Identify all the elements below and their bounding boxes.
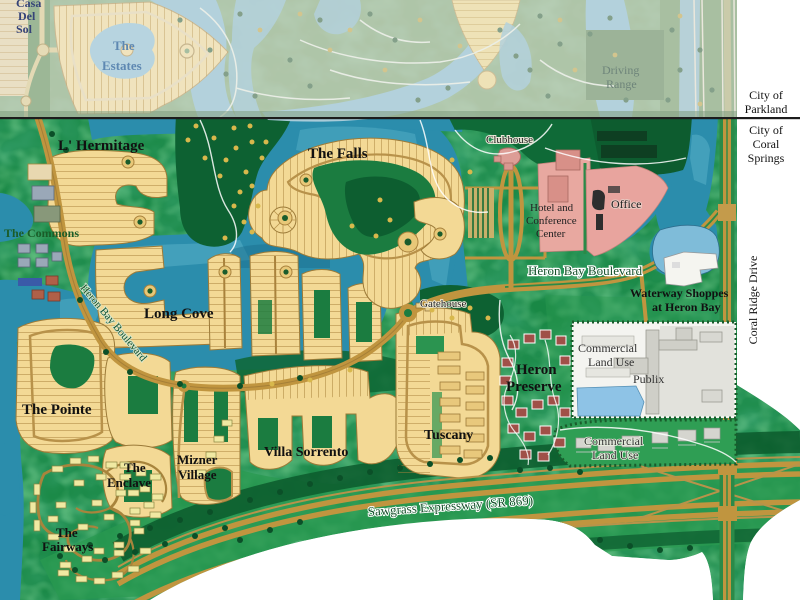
svg-text:Hotel and: Hotel and xyxy=(530,202,574,214)
svg-text:Mizner: Mizner xyxy=(177,452,218,467)
svg-text:L' Hermitage: L' Hermitage xyxy=(58,138,145,154)
svg-text:Gatehouse: Gatehouse xyxy=(420,298,467,310)
svg-text:Waterway Shoppes: Waterway Shoppes xyxy=(630,286,729,300)
svg-text:Clubhouse: Clubhouse xyxy=(486,134,533,146)
svg-text:Heron Bay Boulevard: Heron Bay Boulevard xyxy=(528,263,643,278)
svg-text:Land Use: Land Use xyxy=(592,448,638,462)
svg-text:Fairways: Fairways xyxy=(42,539,93,554)
svg-text:The: The xyxy=(124,460,146,475)
svg-text:The Pointe: The Pointe xyxy=(22,402,92,418)
svg-text:Parkland: Parkland xyxy=(745,102,788,116)
svg-text:Preserve: Preserve xyxy=(506,379,562,395)
svg-text:City of: City of xyxy=(749,88,783,102)
svg-text:City of: City of xyxy=(749,123,783,137)
svg-text:Office: Office xyxy=(611,197,641,211)
svg-text:Long Cove: Long Cove xyxy=(144,306,214,322)
svg-text:Conference: Conference xyxy=(526,215,577,227)
svg-text:Village: Village xyxy=(178,467,217,482)
svg-text:Villa Sorrento: Villa Sorrento xyxy=(264,445,348,460)
svg-text:Springs: Springs xyxy=(748,151,785,165)
svg-text:Tuscany: Tuscany xyxy=(424,428,473,443)
svg-text:Enclave: Enclave xyxy=(107,475,151,490)
svg-text:Land Use: Land Use xyxy=(588,355,634,369)
svg-text:Coral: Coral xyxy=(753,137,780,151)
svg-text:Center: Center xyxy=(536,228,566,240)
svg-text:at Heron Bay: at Heron Bay xyxy=(652,300,720,314)
svg-text:Publix: Publix xyxy=(633,372,664,386)
svg-text:Coral Ridge Drive: Coral Ridge Drive xyxy=(746,256,760,345)
svg-text:The Falls: The Falls xyxy=(308,146,368,162)
svg-text:Commercial: Commercial xyxy=(578,341,638,355)
svg-text:The Commons: The Commons xyxy=(4,226,79,240)
svg-text:The: The xyxy=(56,525,78,540)
svg-text:Heron: Heron xyxy=(516,362,557,378)
svg-text:Commercial: Commercial xyxy=(584,434,644,448)
